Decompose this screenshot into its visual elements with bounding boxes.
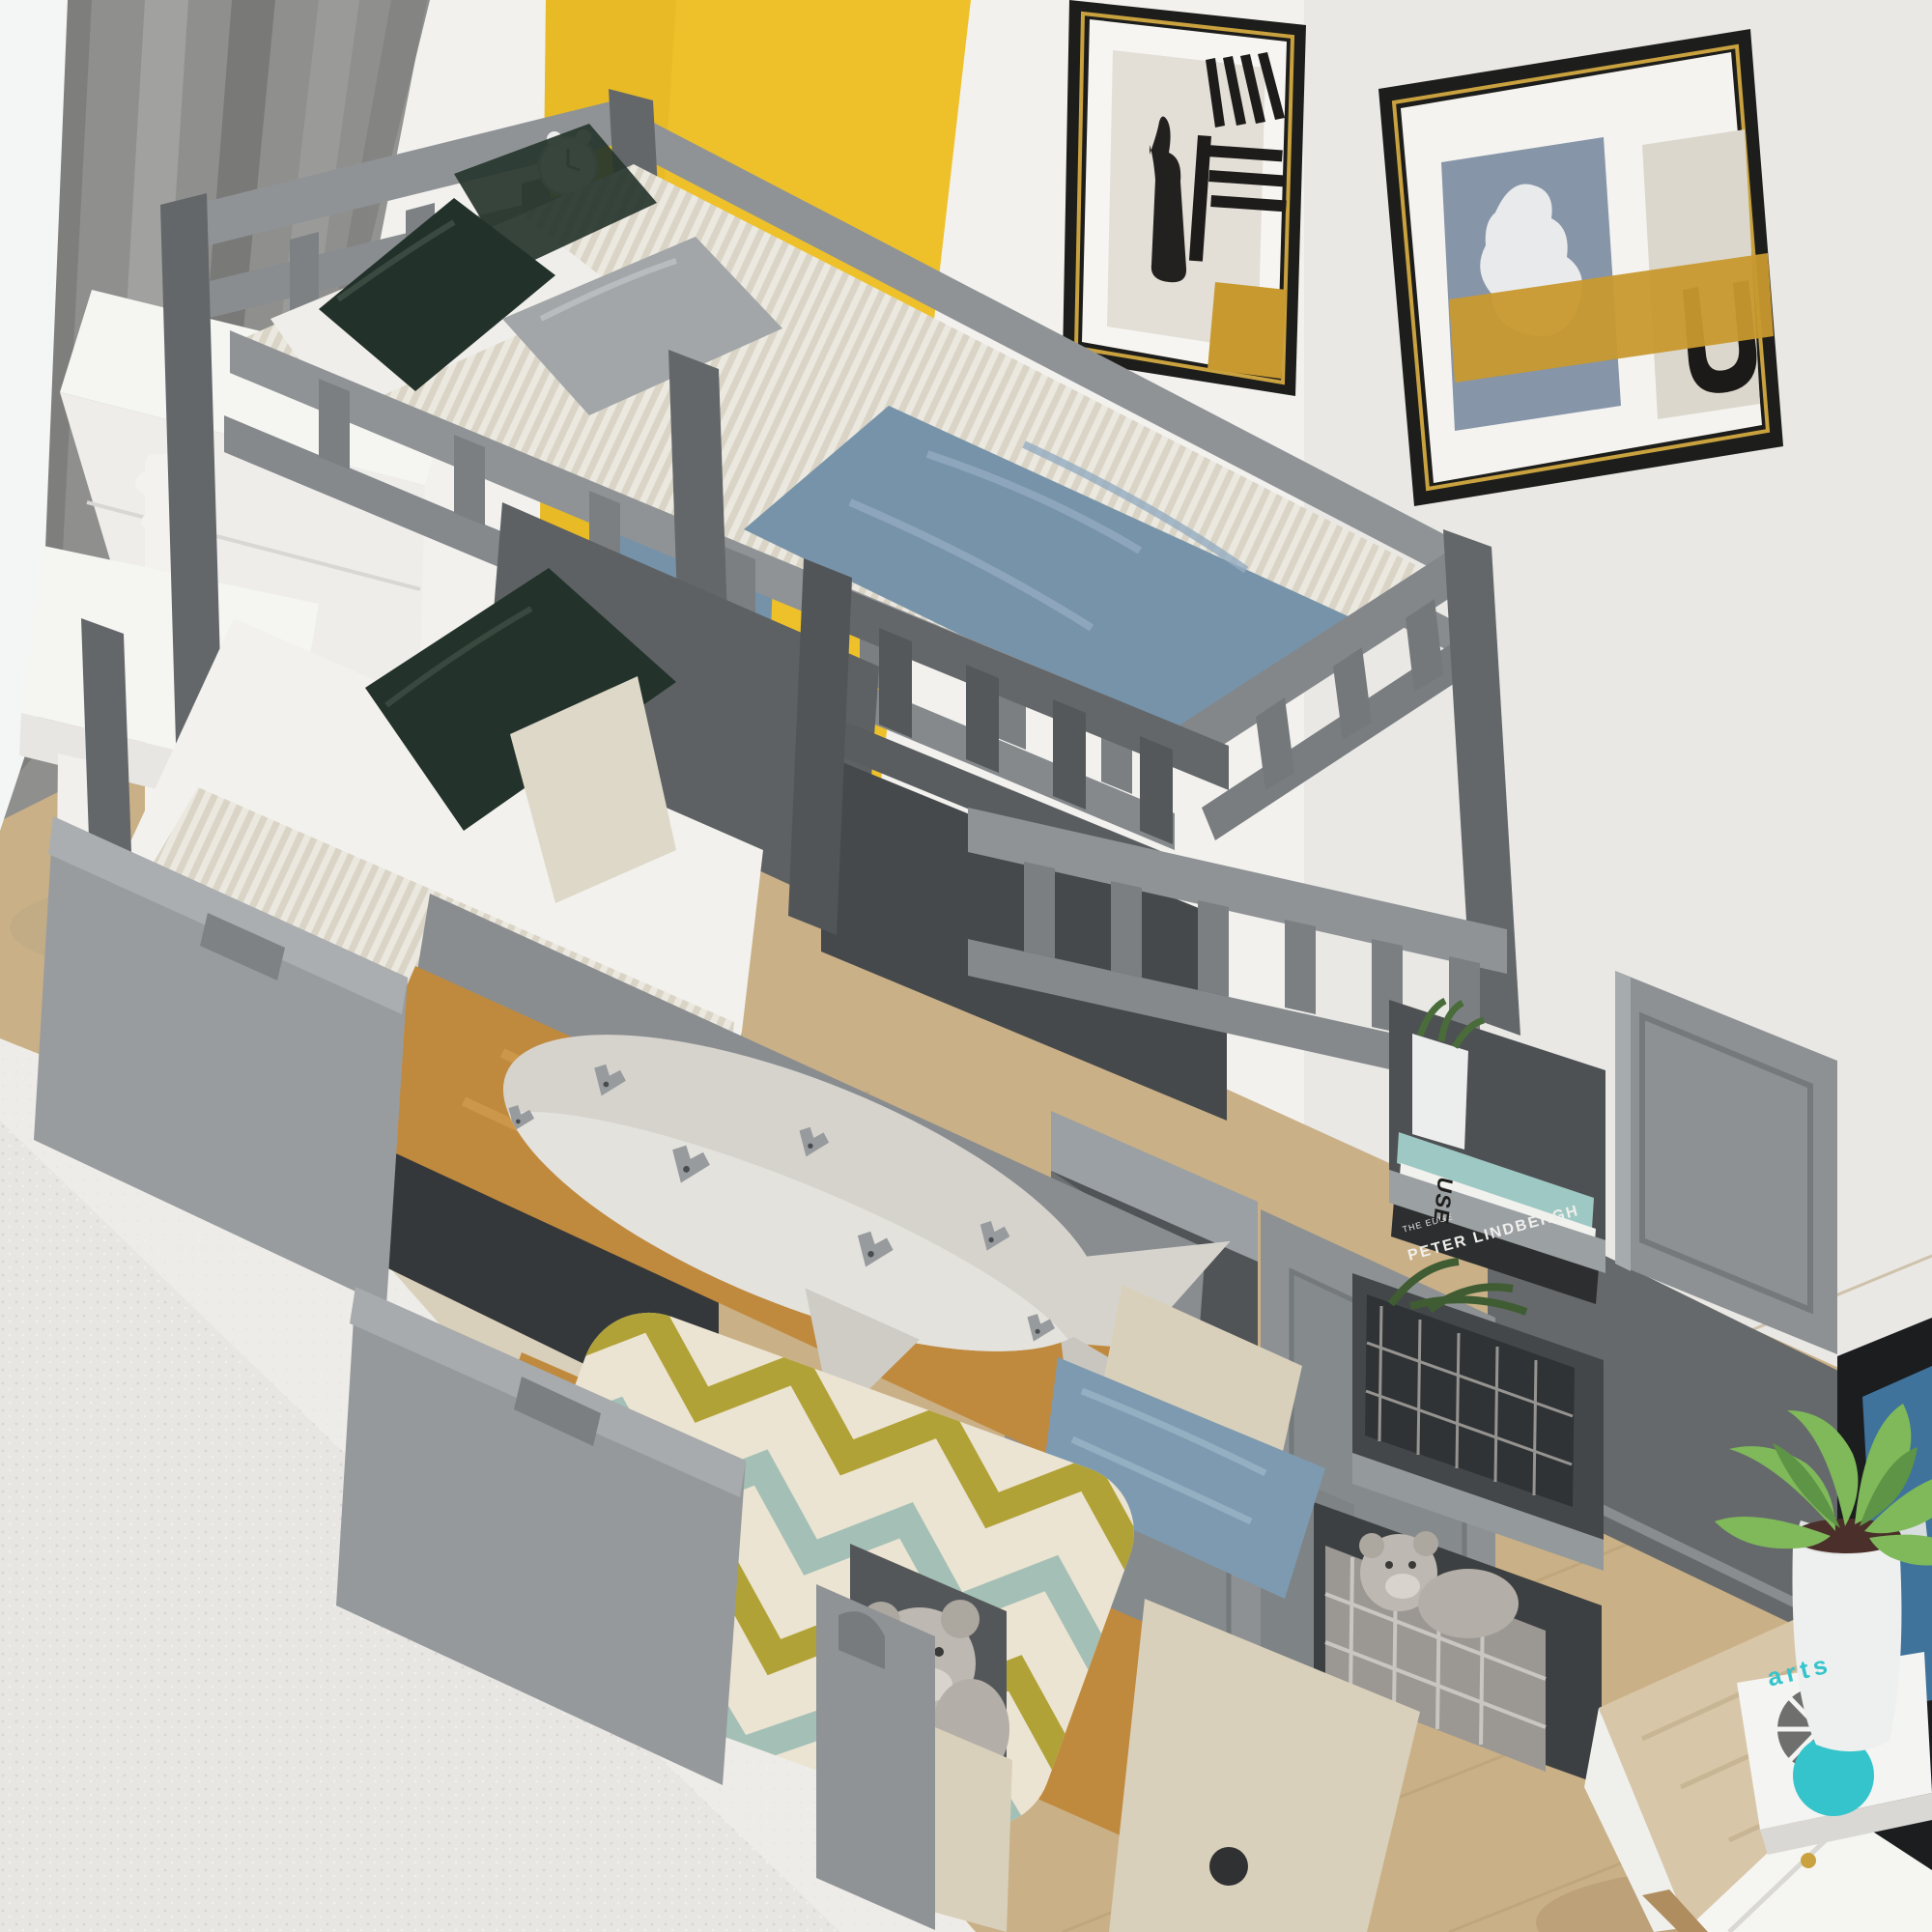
wall-art-frame-2: [1378, 29, 1783, 506]
stair-step-drawer: [816, 1544, 1012, 1932]
step-drawer-side: [929, 1727, 1012, 1932]
shelf-plant-pot: [1412, 1034, 1468, 1150]
bedroom-photo: PETER LINDBERGH THE EDGE USE arts: [0, 0, 1932, 1932]
drawer-caster-wheel: [1209, 1847, 1248, 1886]
table-knob: [1801, 1853, 1816, 1868]
gold-block-art: [1207, 282, 1287, 379]
wall-art-frame-1: [1063, 0, 1306, 396]
